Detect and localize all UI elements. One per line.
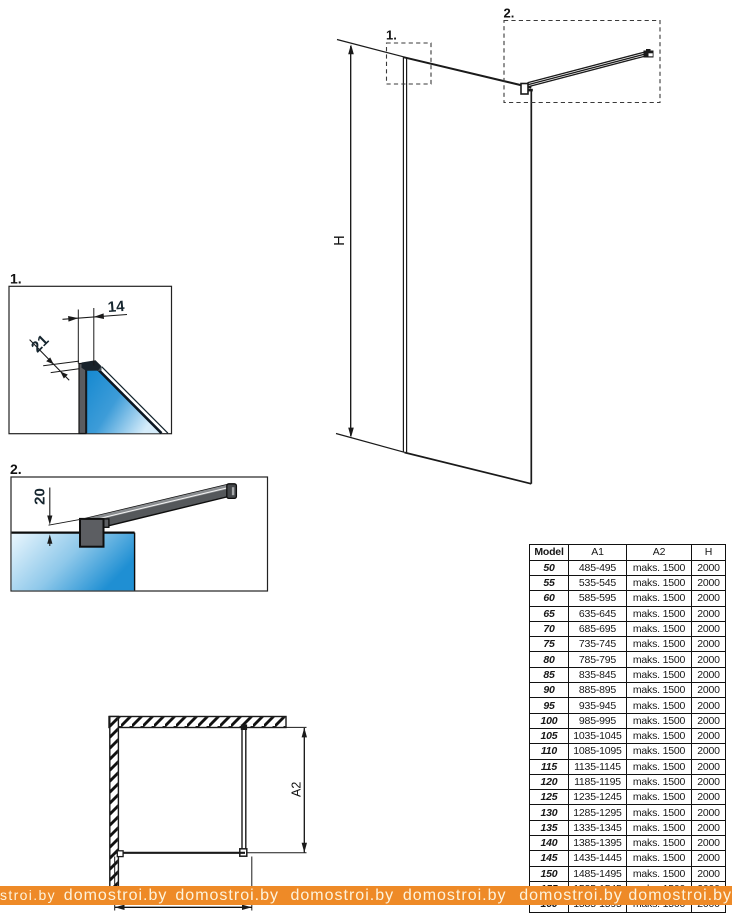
svg-text:2.: 2. <box>10 461 22 477</box>
svg-text:H: H <box>332 235 348 245</box>
svg-text:21: 21 <box>28 332 52 356</box>
svg-text:1.: 1. <box>10 271 22 287</box>
svg-text:A2: A2 <box>289 782 303 797</box>
svg-text:2.: 2. <box>504 6 515 21</box>
svg-text:1.: 1. <box>386 28 397 43</box>
svg-text:20: 20 <box>31 488 48 505</box>
svg-text:14: 14 <box>107 298 126 316</box>
